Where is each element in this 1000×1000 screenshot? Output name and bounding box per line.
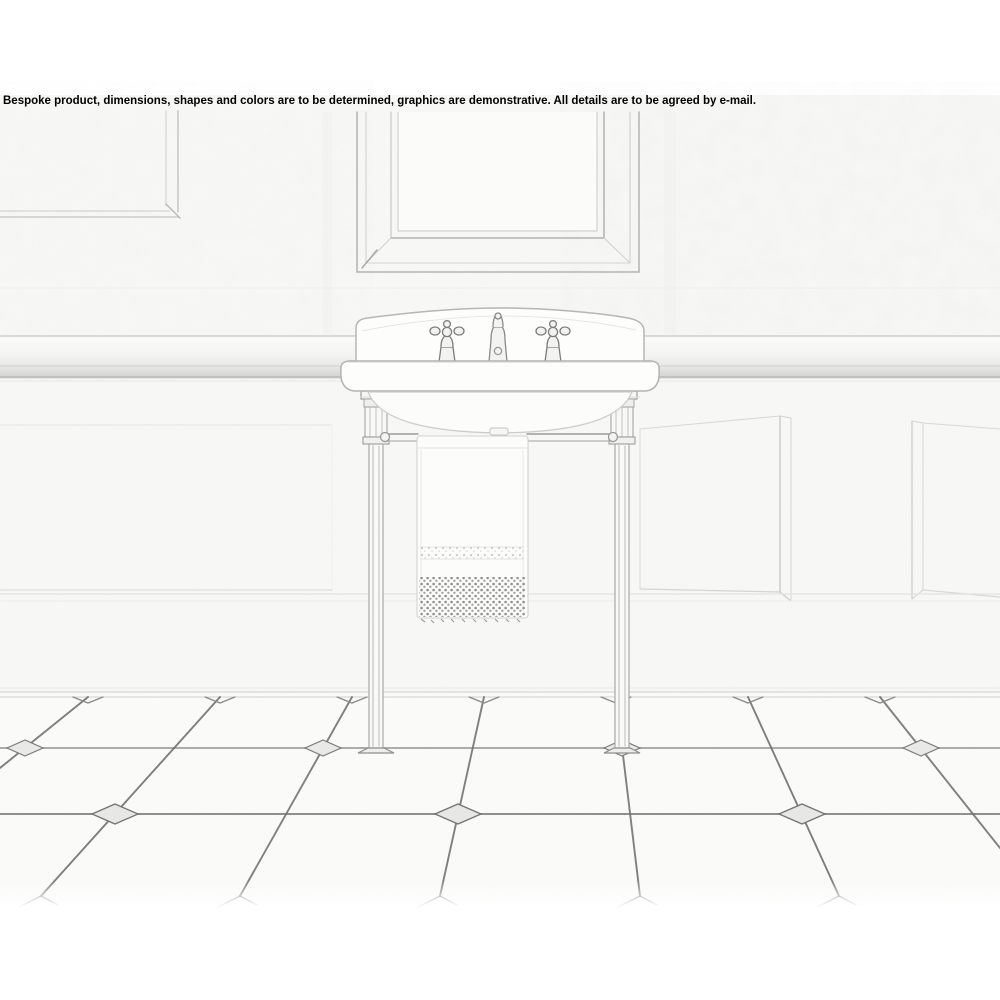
wall-shading: [322, 112, 332, 334]
disclaimer-text: Bespoke product, dimensions, shapes and …: [3, 95, 997, 107]
wall-shading: [664, 112, 676, 334]
bathroom-sketch-illustration: [0, 0, 1000, 1000]
product-visualization: Bespoke product, dimensions, shapes and …: [0, 0, 1000, 1000]
towel: [417, 436, 528, 623]
drain-detail: [490, 428, 508, 435]
basin-rim: [341, 361, 659, 391]
